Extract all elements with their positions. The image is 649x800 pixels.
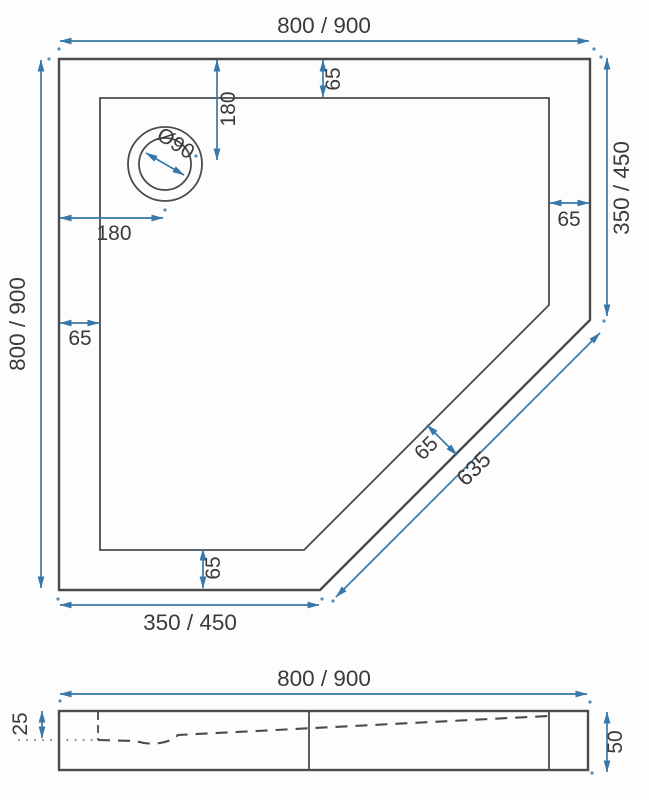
drain-diameter-label: Ø90	[153, 123, 199, 164]
side-width-label: 800 / 900	[277, 666, 371, 691]
top-view: Ø90 800 / 900 800 / 900 350 / 450 350 / …	[5, 13, 634, 635]
drain-from-top-label: 180	[217, 91, 240, 126]
bottom-side-label: 350 / 450	[143, 610, 237, 635]
side-profile-outline	[59, 711, 588, 770]
rim-bottom-label: 65	[202, 556, 225, 579]
reference-dots	[47, 47, 605, 602]
total-height-label: 50	[604, 730, 627, 753]
drain-from-left-label: 180	[96, 222, 131, 245]
left-height-label: 800 / 900	[5, 277, 30, 371]
shower-tray-drawing: Ø90 800 / 900 800 / 900 350 / 450 350 / …	[0, 0, 649, 800]
right-side-label: 350 / 450	[609, 141, 634, 235]
rim-left-label: 65	[68, 327, 91, 350]
side-view: 800 / 900 25 50	[9, 666, 627, 775]
rim-right-label: 65	[557, 208, 580, 231]
floor-slope-hidden-line	[98, 716, 548, 744]
rim-height-label: 25	[9, 712, 32, 735]
technical-drawing-page: Ø90 800 / 900 800 / 900 350 / 450 350 / …	[0, 0, 649, 800]
rim-top-label: 65	[322, 67, 345, 90]
top-width-label: 800 / 900	[277, 13, 371, 38]
